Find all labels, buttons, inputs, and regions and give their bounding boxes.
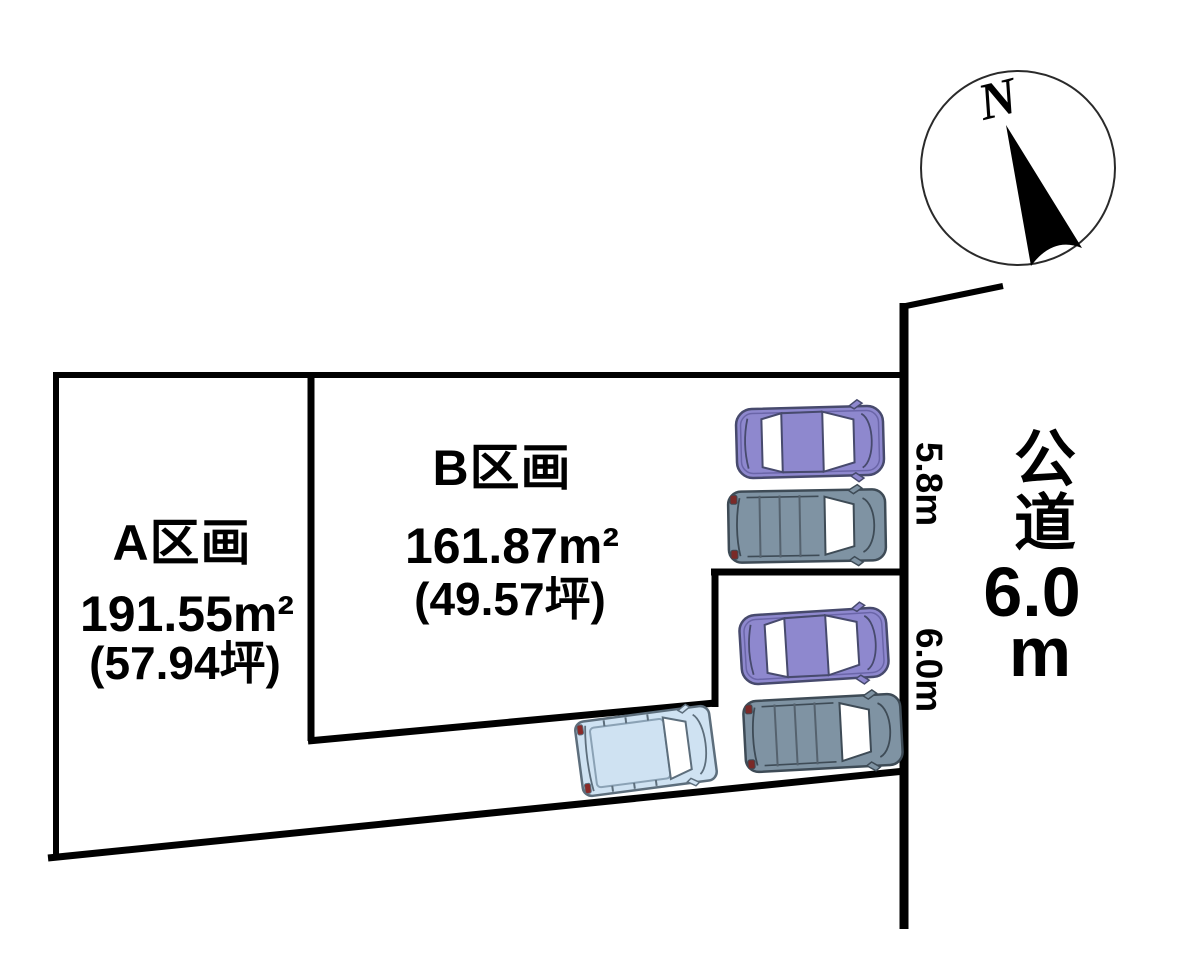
plot-a-area-m2: 191.55m² xyxy=(80,589,294,639)
frontage-upper-label: 5.8m xyxy=(911,442,948,526)
plot-b-name: B区画 xyxy=(432,443,571,493)
road-width-unit: m xyxy=(1009,617,1071,687)
plot-b-area-m2: 161.87m² xyxy=(405,521,619,571)
plot-a-name: A区画 xyxy=(112,518,251,568)
road-edge-diagonal xyxy=(901,286,1003,307)
car-sedan-1 xyxy=(735,399,884,485)
car-sedan-2 xyxy=(738,601,890,692)
plot-a-area-tsubo: (57.94坪) xyxy=(89,640,281,686)
car-suv-2 xyxy=(742,688,903,777)
plot-b-area-tsubo: (49.57坪) xyxy=(414,576,606,622)
road-name-label: 公道 xyxy=(1007,426,1069,554)
site-plan-diagram: N A区画 191.55m² (57.94坪) B区画 161.87m² (49… xyxy=(0,0,1200,972)
frontage-lower-label: 6.0m xyxy=(911,628,948,712)
boundary-bottom xyxy=(48,771,905,858)
car-suv-1 xyxy=(728,484,886,568)
